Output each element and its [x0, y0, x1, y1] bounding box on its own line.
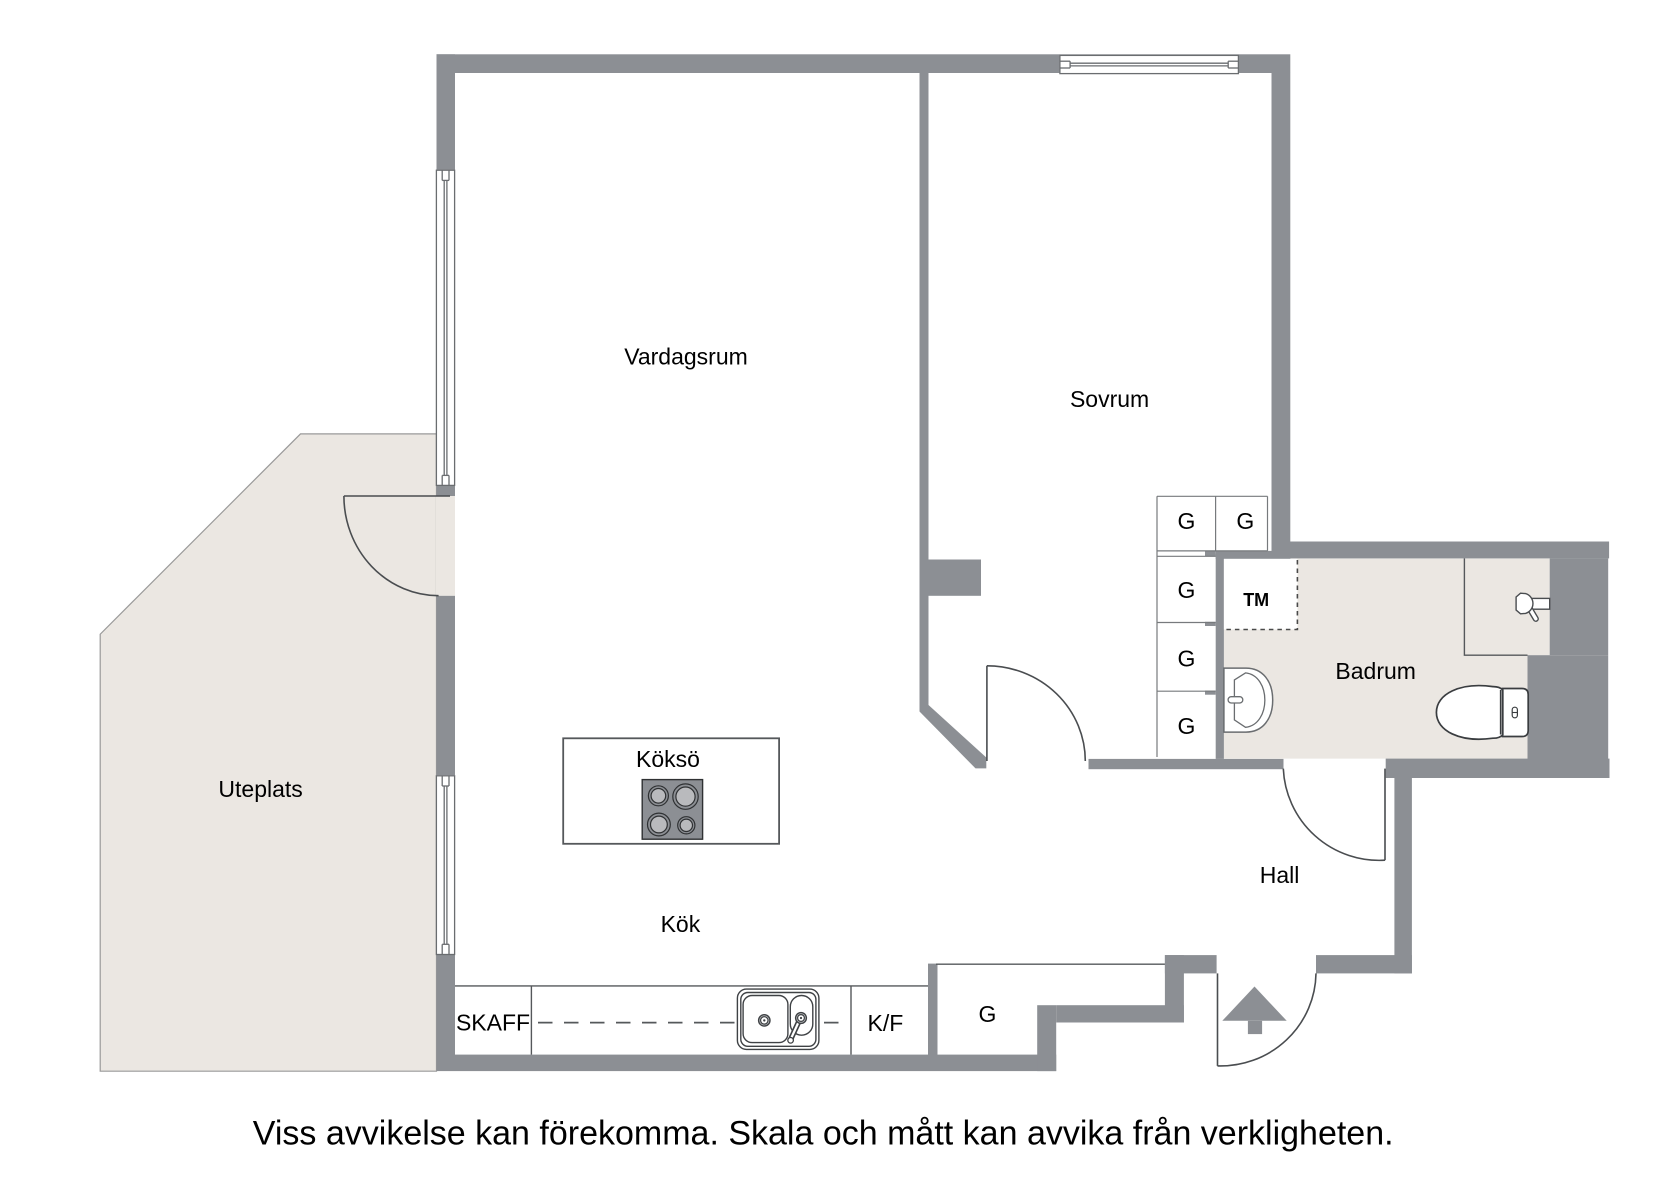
- svg-text:G: G: [978, 1001, 996, 1027]
- svg-text:Badrum: Badrum: [1335, 658, 1416, 684]
- svg-text:Viss avvikelse kan förekomma.: Viss avvikelse kan förekomma. Skala och …: [253, 1114, 1394, 1152]
- svg-text:G: G: [1177, 713, 1195, 739]
- svg-text:Hall: Hall: [1260, 862, 1300, 888]
- svg-text:Vardagsrum: Vardagsrum: [624, 344, 748, 370]
- svg-text:Kök: Kök: [661, 911, 701, 937]
- svg-text:Sovrum: Sovrum: [1070, 386, 1149, 412]
- svg-text:Uteplats: Uteplats: [218, 776, 302, 802]
- svg-text:Köksö: Köksö: [636, 746, 700, 772]
- svg-text:G: G: [1177, 508, 1195, 534]
- svg-text:SKAFF: SKAFF: [456, 1010, 530, 1036]
- svg-text:G: G: [1177, 577, 1195, 603]
- svg-text:K/F: K/F: [868, 1010, 904, 1036]
- svg-text:TM: TM: [1243, 590, 1269, 610]
- svg-text:G: G: [1236, 508, 1254, 534]
- svg-text:G: G: [1177, 646, 1195, 672]
